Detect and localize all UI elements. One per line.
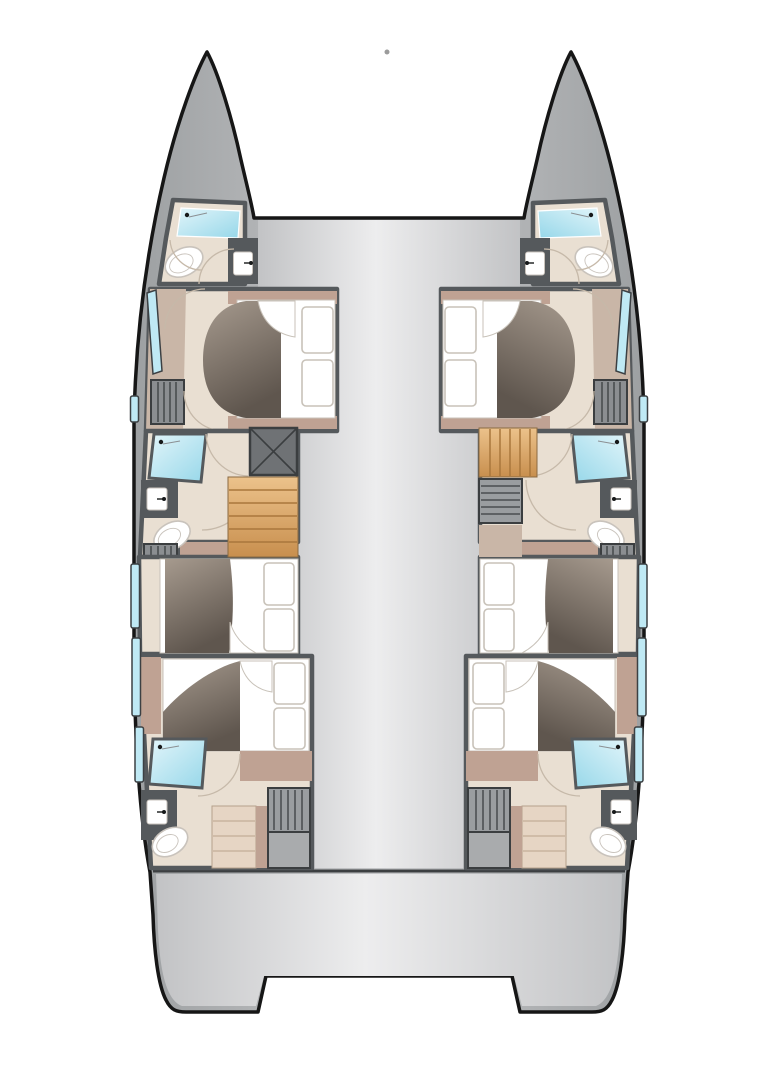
companionway-stairs — [228, 477, 298, 557]
footboard-strip — [240, 751, 312, 781]
hull-window — [132, 638, 141, 716]
pillow — [274, 708, 305, 749]
louver-locker — [151, 380, 184, 424]
locker-base — [268, 832, 310, 868]
shower-tray — [177, 208, 240, 238]
hull-window — [135, 727, 144, 782]
shower-head-icon — [158, 745, 162, 749]
shower-head-icon — [159, 440, 163, 444]
floor-plan-canvas — [0, 0, 778, 1080]
pillow — [264, 609, 294, 651]
duvet — [165, 559, 233, 653]
pillow — [274, 663, 305, 704]
pillow — [264, 563, 294, 605]
side-strip — [141, 657, 161, 734]
hull-window — [131, 396, 139, 422]
aft-cabin — [140, 656, 312, 868]
shower-head-icon — [185, 213, 189, 217]
bow-fitting-dot — [385, 50, 390, 55]
pillow — [302, 307, 333, 353]
mid-cabin — [139, 557, 298, 654]
hull-window — [131, 564, 140, 628]
catamaran-floor-plan-svg — [0, 0, 778, 1080]
companionway-stairs — [479, 428, 537, 477]
aft-steps — [212, 806, 268, 868]
forward-cabin — [146, 289, 337, 431]
aft-deck — [156, 874, 622, 1006]
bow-bathroom — [159, 200, 258, 284]
shelf-base — [479, 525, 522, 557]
pillow — [302, 360, 333, 406]
louver-shelf — [479, 479, 522, 523]
wardrobe-louver — [268, 788, 310, 868]
floor-hatch — [250, 428, 297, 475]
